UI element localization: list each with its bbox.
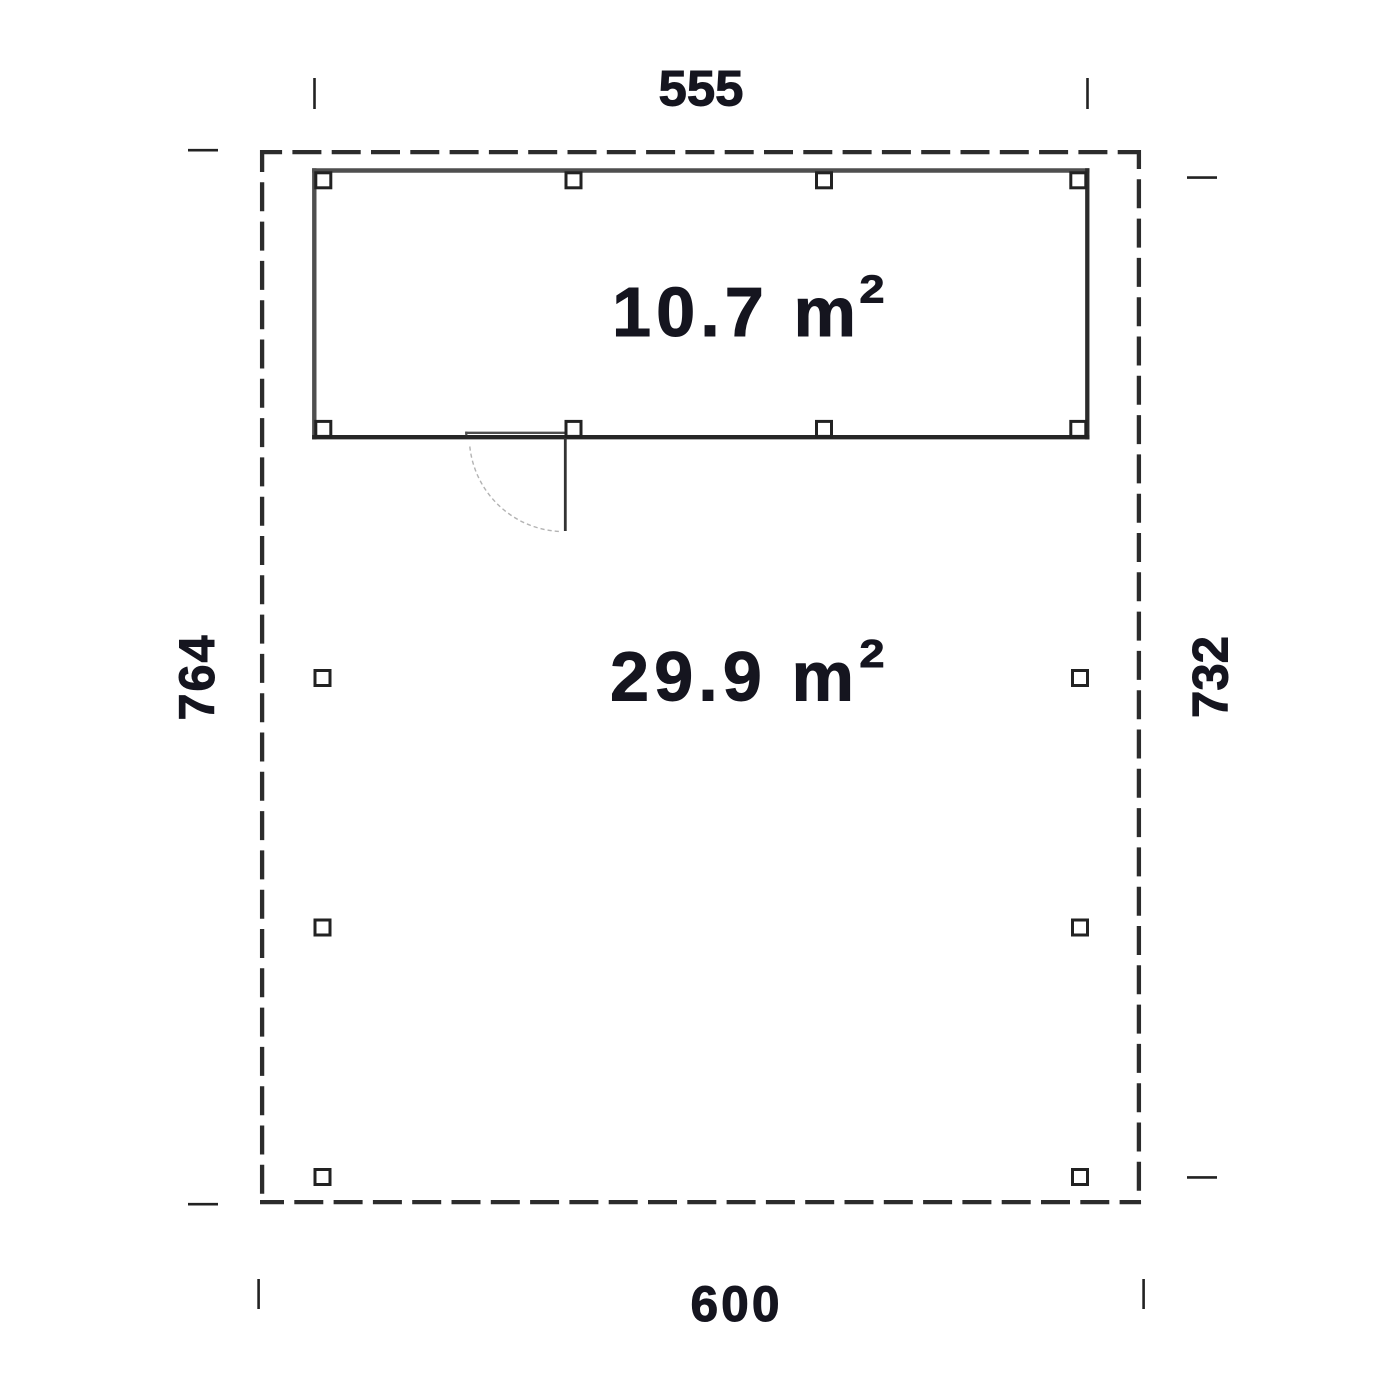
svg-text:2: 2 — [860, 633, 885, 676]
svg-text:764: 764 — [169, 634, 225, 721]
svg-text:2: 2 — [860, 269, 885, 312]
svg-text:555: 555 — [659, 61, 744, 117]
svg-text:600: 600 — [691, 1276, 783, 1332]
svg-text:29.9 m: 29.9 m — [610, 638, 859, 716]
svg-text:732: 732 — [1182, 636, 1238, 718]
svg-text:10.7 m: 10.7 m — [612, 273, 861, 351]
